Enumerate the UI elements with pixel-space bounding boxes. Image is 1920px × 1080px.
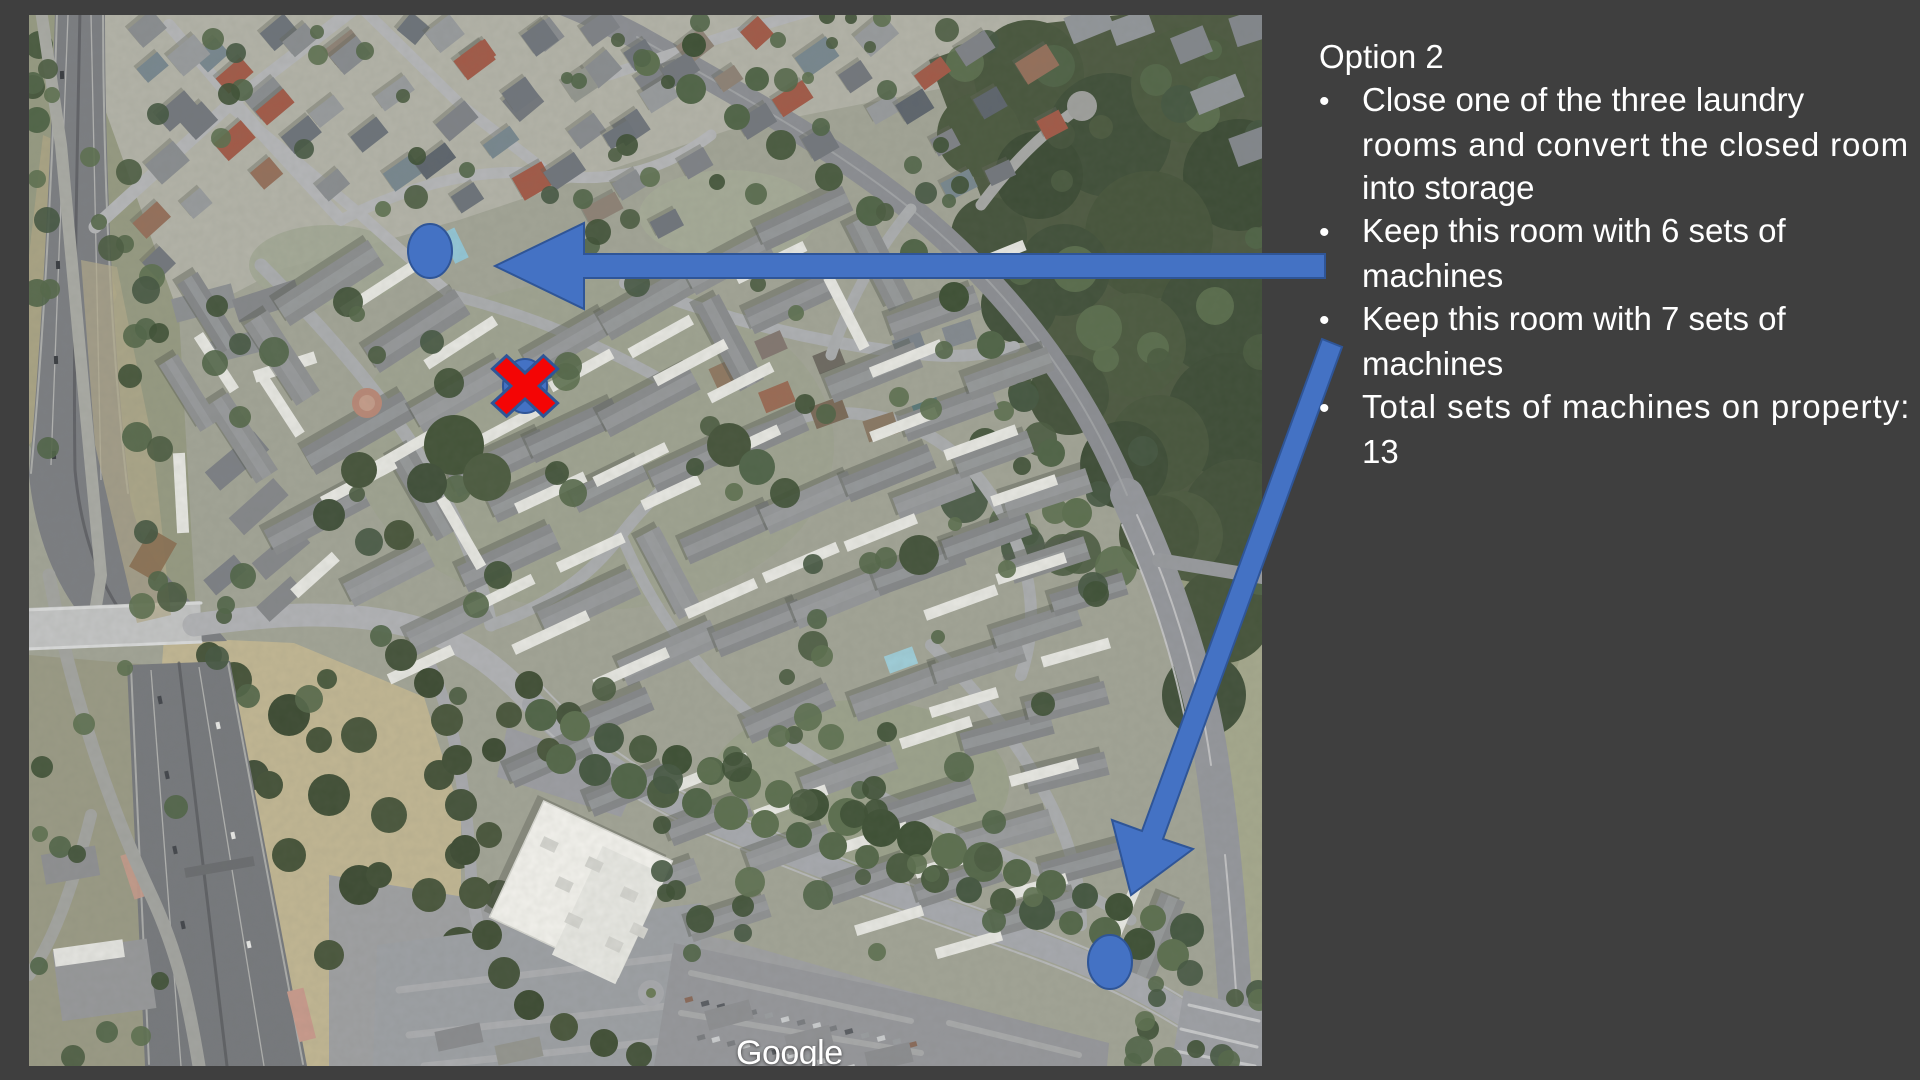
svg-text:Google: Google [736, 1034, 843, 1066]
